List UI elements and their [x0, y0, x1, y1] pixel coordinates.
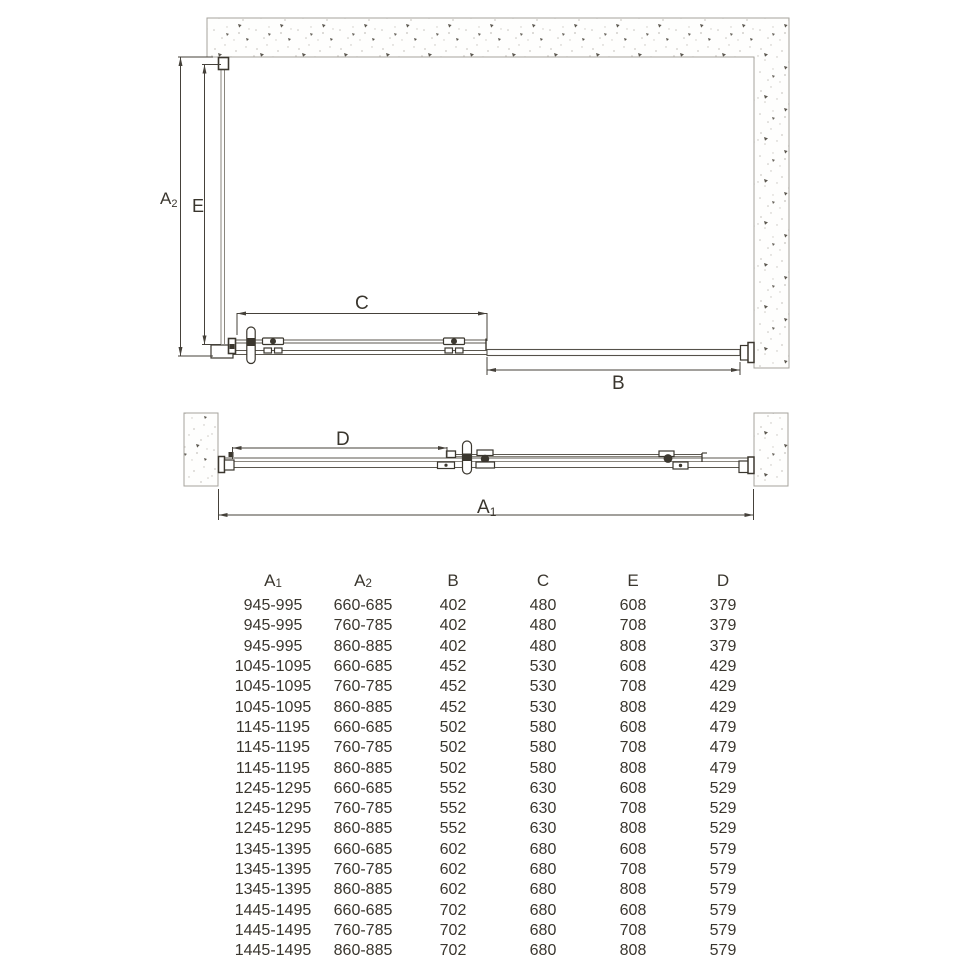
table-cell: 708: [588, 678, 678, 696]
table-cell: 529: [678, 820, 768, 838]
table-header-cell: B: [408, 571, 498, 591]
table-cell: 708: [588, 739, 678, 757]
table-cell: 1045-1095: [228, 699, 318, 717]
table-cell: 552: [408, 780, 498, 798]
table-cell: 608: [588, 902, 678, 920]
table-cell: 529: [678, 800, 768, 818]
table-cell: 1145-1195: [228, 739, 318, 757]
table-cell: 402: [408, 597, 498, 615]
dimension-e-label: E: [192, 196, 204, 216]
table-cell: 680: [498, 922, 588, 940]
corner-connector: [211, 339, 236, 359]
table-row: 1345-1395860-885602680808579: [0, 880, 970, 900]
table-row: 1145-1195860-885502580808479: [0, 758, 970, 778]
table-cell: 452: [408, 658, 498, 676]
table-cell: 680: [498, 861, 588, 879]
table-cell: 530: [498, 658, 588, 676]
table-cell: 860-885: [318, 638, 408, 656]
table-cell: 579: [678, 861, 768, 879]
table-cell: 1445-1495: [228, 902, 318, 920]
table-cell: 630: [498, 780, 588, 798]
table-cell: 808: [588, 760, 678, 778]
table-cell: 1245-1295: [228, 780, 318, 798]
table-cell: 680: [498, 902, 588, 920]
table-cell: 945-995: [228, 638, 318, 656]
table-cell: 702: [408, 922, 498, 940]
table-cell: 630: [498, 800, 588, 818]
table-cell: 402: [408, 638, 498, 656]
table-cell: 379: [678, 617, 768, 635]
wall: [207, 18, 789, 368]
table-row: 1445-1495760-785702680708579: [0, 921, 970, 941]
table-cell: 1245-1295: [228, 820, 318, 838]
table-cell: 429: [678, 678, 768, 696]
table-cell: 608: [588, 597, 678, 615]
table-cell: 945-995: [228, 597, 318, 615]
table-cell: 1045-1095: [228, 658, 318, 676]
table-cell: 760-785: [318, 800, 408, 818]
table-cell: 708: [588, 922, 678, 940]
table-cell: 708: [588, 861, 678, 879]
table-row: 1245-1295760-785552630708529: [0, 799, 970, 819]
table-cell: 760-785: [318, 617, 408, 635]
table-row: 1245-1295860-885552630808529: [0, 819, 970, 839]
dimension-d-label: D: [336, 429, 350, 450]
table-cell: 379: [678, 597, 768, 615]
table-cell: 502: [408, 739, 498, 757]
glass-clamp: [438, 462, 455, 469]
table-cell: 860-885: [318, 760, 408, 778]
fixed-panel-top-view: [487, 350, 740, 356]
dimension-d: D: [233, 429, 448, 459]
table-cell: 379: [678, 638, 768, 656]
table-cell: 808: [588, 699, 678, 717]
table-cell: 580: [498, 760, 588, 778]
table-cell: 760-785: [318, 922, 408, 940]
table-cell: 660-685: [318, 658, 408, 676]
table-cell: 579: [678, 922, 768, 940]
table-cell: 479: [678, 739, 768, 757]
dimension-a1: A1: [219, 489, 754, 520]
wall-block-left: [184, 413, 218, 486]
table-cell: 1145-1195: [228, 760, 318, 778]
table-cell: 530: [498, 678, 588, 696]
table-cell: 502: [408, 719, 498, 737]
table-cell: 760-785: [318, 678, 408, 696]
table-cell: 608: [588, 719, 678, 737]
size-table-body: 945-995660-685402480608379945-995760-785…: [0, 596, 970, 961]
table-cell: 552: [408, 800, 498, 818]
table-cell: 579: [678, 881, 768, 899]
door-handle-section: [463, 441, 472, 474]
table-row: 1145-1195660-685502580608479: [0, 718, 970, 738]
table-cell: 1345-1395: [228, 861, 318, 879]
table-cell: 680: [498, 881, 588, 899]
table-cell: 579: [678, 841, 768, 859]
table-cell: 1345-1395: [228, 881, 318, 899]
table-row: 1345-1395660-685602680608579: [0, 840, 970, 860]
wall-profile-right-section: [739, 457, 754, 474]
plan-view: A2 E C: [160, 18, 789, 394]
table-cell: 1445-1495: [228, 922, 318, 940]
size-table-header: A1A2BCED: [0, 566, 970, 596]
table-cell: 429: [678, 658, 768, 676]
table-cell: 479: [678, 719, 768, 737]
table-row: 1045-1095860-885452530808429: [0, 697, 970, 717]
table-cell: 402: [408, 617, 498, 635]
table-cell: 530: [498, 699, 588, 717]
table-cell: 860-885: [318, 699, 408, 717]
table-cell: 602: [408, 881, 498, 899]
size-table: A1A2BCED 945-995660-685402480608379945-9…: [0, 566, 970, 961]
table-cell: 808: [588, 820, 678, 838]
table-cell: 452: [408, 699, 498, 717]
dimension-c: C: [237, 293, 487, 341]
table-cell: 808: [588, 942, 678, 960]
table-row: 1145-1195760-785502580708479: [0, 738, 970, 758]
table-cell: 529: [678, 780, 768, 798]
table-cell: 808: [588, 881, 678, 899]
table-cell: 945-995: [228, 617, 318, 635]
table-header-cell: C: [498, 571, 588, 591]
table-cell: 608: [588, 841, 678, 859]
table-row: 1345-1395760-785602680708579: [0, 860, 970, 880]
table-cell: 602: [408, 841, 498, 859]
dimension-a1-label: A1: [477, 497, 497, 519]
table-header-cell: D: [678, 571, 768, 591]
table-cell: 808: [588, 638, 678, 656]
table-cell: 1445-1495: [228, 942, 318, 960]
shower-enclosure-spec-sheet: A2 E C: [0, 0, 970, 970]
table-cell: 660-685: [318, 780, 408, 798]
table-cell: 680: [498, 942, 588, 960]
dimension-b: B: [487, 357, 740, 394]
table-cell: 702: [408, 942, 498, 960]
table-header-cell: E: [588, 571, 678, 591]
table-cell: 580: [498, 719, 588, 737]
table-header-cell: A2: [318, 571, 408, 591]
table-cell: 760-785: [318, 861, 408, 879]
wall-profile-top: [219, 58, 229, 70]
table-header-cell: A1: [228, 571, 318, 591]
table-cell: 579: [678, 942, 768, 960]
table-row: 1045-1095760-785452530708429: [0, 677, 970, 697]
table-cell: 702: [408, 902, 498, 920]
table-cell: 708: [588, 617, 678, 635]
table-cell: 502: [408, 760, 498, 778]
door-handle: [247, 327, 255, 364]
table-cell: 429: [678, 699, 768, 717]
table-row: 945-995760-785402480708379: [0, 616, 970, 636]
table-row: 1245-1295660-685552630608529: [0, 779, 970, 799]
table-cell: 1145-1195: [228, 719, 318, 737]
table-cell: 480: [498, 597, 588, 615]
table-cell: 579: [678, 902, 768, 920]
table-cell: 480: [498, 638, 588, 656]
table-cell: 1045-1095: [228, 678, 318, 696]
table-cell: 480: [498, 617, 588, 635]
dimension-a2: A2: [160, 57, 213, 356]
table-cell: 630: [498, 820, 588, 838]
table-cell: 660-685: [318, 841, 408, 859]
table-cell: 660-685: [318, 597, 408, 615]
table-cell: 680: [498, 841, 588, 859]
table-cell: 1245-1295: [228, 800, 318, 818]
dimension-e: E: [192, 65, 221, 345]
dimension-b-label: B: [612, 373, 625, 394]
table-cell: 660-685: [318, 719, 408, 737]
table-row: 1045-1095660-685452530608429: [0, 657, 970, 677]
table-row: 945-995660-685402480608379: [0, 596, 970, 616]
table-cell: 860-885: [318, 881, 408, 899]
table-cell: 708: [588, 800, 678, 818]
table-cell: 860-885: [318, 942, 408, 960]
roller-assembly-section: [476, 450, 495, 468]
table-cell: 660-685: [318, 902, 408, 920]
side-panel-glass: [221, 68, 225, 344]
wall-profile-left: [219, 452, 235, 473]
table-cell: 479: [678, 760, 768, 778]
table-row: 1445-1495660-685702680608579: [0, 900, 970, 920]
table-row: 945-995860-885402480808379: [0, 637, 970, 657]
table-cell: 608: [588, 780, 678, 798]
table-cell: 860-885: [318, 820, 408, 838]
table-cell: 552: [408, 820, 498, 838]
roller-assembly-section: [659, 451, 688, 469]
table-cell: 608: [588, 658, 678, 676]
dimension-c-label: C: [355, 293, 369, 314]
table-cell: 760-785: [318, 739, 408, 757]
section-view: D A1: [184, 413, 788, 520]
table-cell: 580: [498, 739, 588, 757]
table-cell: 1345-1395: [228, 841, 318, 859]
table-row: 1445-1495860-885702680808579: [0, 941, 970, 961]
table-cell: 602: [408, 861, 498, 879]
door-stopper: [447, 451, 456, 458]
wall-profile-right: [741, 343, 755, 363]
table-cell: 452: [408, 678, 498, 696]
dimension-a2-label: A2: [160, 189, 177, 210]
wall-block-right: [754, 413, 788, 486]
technical-drawing: A2 E C: [0, 0, 970, 550]
